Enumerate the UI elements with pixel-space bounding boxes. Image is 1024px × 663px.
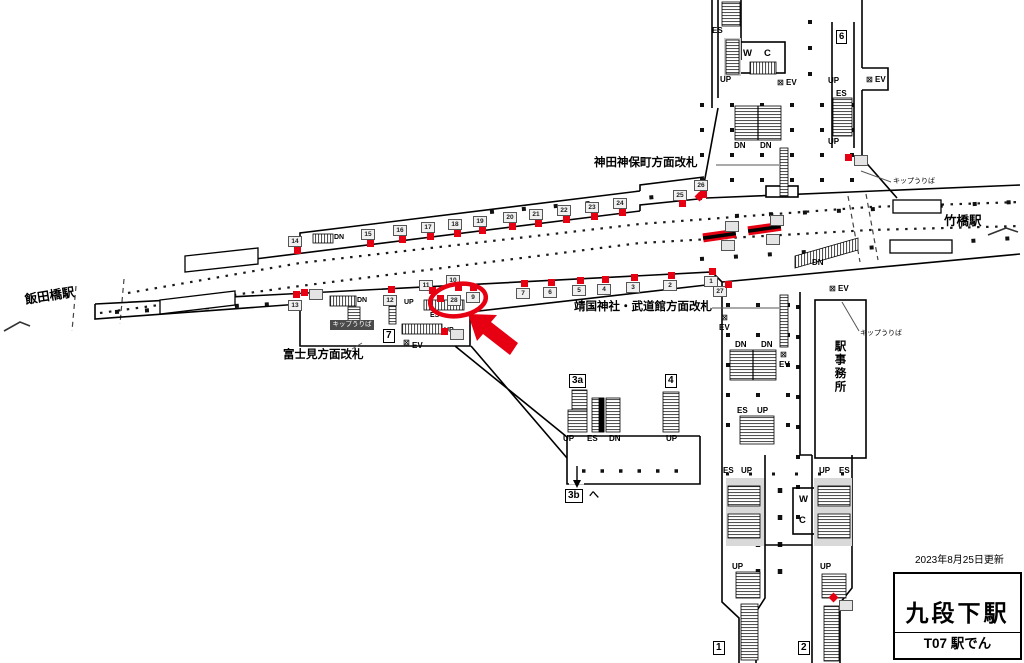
- up-label: UP: [404, 299, 414, 306]
- exit-7-box: 7: [383, 329, 395, 343]
- up-label: UP: [828, 77, 839, 85]
- elevator-icon: ⊠: [780, 351, 787, 359]
- panel-number-box: [854, 155, 868, 166]
- panel-number-box: [725, 221, 739, 232]
- dn-label: DN: [734, 142, 746, 150]
- es-label: ES: [737, 407, 748, 415]
- es-label: ES: [839, 467, 850, 475]
- exit-4-box: 4: [665, 374, 677, 388]
- wc-c-label: C: [799, 516, 806, 526]
- panel-number-box: 22: [557, 205, 571, 216]
- panel-number-box: 9: [466, 292, 480, 303]
- panel-number-box: [721, 240, 735, 251]
- north-concourse-walls: [712, 0, 897, 198]
- panel-number-box: [770, 215, 784, 226]
- panel-red-square: [535, 220, 542, 227]
- ticket-office-label-west: キップうりば: [330, 320, 374, 330]
- panel-red-square: [441, 328, 448, 335]
- panel-red-square: [725, 281, 732, 288]
- ev-label: EV: [875, 76, 886, 84]
- panel-number-box: 12: [383, 295, 397, 306]
- dn-label: DN: [735, 341, 747, 349]
- panel-red-square: [602, 276, 609, 283]
- ticket-office-label-north: キップうりば: [893, 178, 935, 185]
- map-updated-date: 2023年8月25日更新: [915, 556, 1004, 566]
- dn-label: DN: [357, 297, 367, 304]
- highlighted-panel-number-box[interactable]: 28: [447, 295, 461, 306]
- wc-c-label: C: [764, 49, 771, 59]
- station-info-box: 東西線 九段下駅 T07 駅でん: [893, 572, 1022, 660]
- panel-number-box: [766, 234, 780, 245]
- panel-number-box: 20: [503, 212, 517, 223]
- station-name: 九段下駅: [895, 595, 1020, 632]
- panel-red-square: [479, 227, 486, 234]
- es-label: ES: [723, 467, 734, 475]
- es-label: ES: [712, 27, 723, 35]
- dn-label: DN: [760, 142, 772, 150]
- up-label: UP: [819, 467, 830, 475]
- panel-red-square: [521, 280, 528, 287]
- exit-3b-suffix: へ: [589, 491, 599, 501]
- panel-number-box: 3: [626, 282, 640, 293]
- wc-w-label: W: [799, 495, 808, 505]
- panel-number-box: [839, 600, 853, 611]
- stairs-blocks: [313, 2, 858, 661]
- gate-label-south: 靖国神社・武道館方面改札: [574, 302, 712, 314]
- adjacent-station-right: 竹橋駅: [944, 215, 982, 228]
- elevator-icon: ⊠: [866, 76, 873, 84]
- panel-number-box: 23: [585, 202, 599, 213]
- panel-red-square: [367, 240, 374, 247]
- platform-walls: [95, 108, 1020, 458]
- ev-label: EV: [719, 324, 730, 332]
- panel-red-square: [399, 236, 406, 243]
- ev-label: EV: [412, 342, 423, 350]
- panel-red-square: [293, 291, 300, 298]
- es-label: ES: [587, 435, 598, 443]
- dn-label: DN: [609, 435, 621, 443]
- panel-number-box: 16: [393, 225, 407, 236]
- panel-number-box: 4: [597, 284, 611, 295]
- panel-number-box: 26: [694, 180, 708, 191]
- panel-number-box: 6: [543, 287, 557, 298]
- exit-6-box: 6: [836, 30, 847, 44]
- panel-red-square: [454, 230, 461, 237]
- station-code: T07 駅でん: [895, 632, 1020, 654]
- station-office-label: 駅事務所: [833, 340, 845, 410]
- ev-label: EV: [779, 361, 790, 369]
- exit-2-box: 2: [798, 641, 810, 655]
- exit-3a-box: 3a: [569, 374, 586, 388]
- up-label: UP: [828, 138, 839, 146]
- elevator-icon: ⊠: [829, 285, 836, 293]
- up-label: UP: [741, 467, 752, 475]
- panel-number-box: 5: [572, 285, 586, 296]
- panel-red-square: [577, 277, 584, 284]
- panel-number-box: [450, 329, 464, 340]
- up-label: UP: [720, 76, 731, 84]
- panel-red-square: [619, 209, 626, 216]
- panel-number-box: [309, 289, 323, 300]
- ev-label: EV: [786, 79, 797, 87]
- line-name-banner: 東西線: [897, 576, 1018, 593]
- dn-label: DN: [334, 234, 344, 241]
- panel-red-square: [548, 279, 555, 286]
- panel-red-square: [427, 233, 434, 240]
- panel-red-square: [591, 213, 598, 220]
- panel-number-box: 19: [473, 216, 487, 227]
- wc-w-label: W: [743, 49, 752, 59]
- up-label: UP: [666, 435, 677, 443]
- dn-label: DN: [761, 341, 773, 349]
- panel-number-box: 13: [288, 300, 302, 311]
- panel-number-box: 15: [361, 229, 375, 240]
- panel-red-square: [294, 247, 301, 254]
- ticket-office-label-south: キップうりば: [860, 330, 902, 337]
- ev-label: EV: [838, 285, 849, 293]
- panel-number-box: 18: [448, 219, 462, 230]
- station-map: 飯田橋駅 竹橋駅 神田神保町方面改札 靖国神社・武道館方面改札 富士見方面改札 …: [0, 0, 1024, 663]
- highlighted-panel-red-square: [437, 295, 444, 302]
- panel-red-square: [455, 284, 462, 291]
- panel-red-square: [301, 289, 308, 296]
- panel-number-box: 21: [529, 209, 543, 220]
- panel-red-square: [563, 216, 570, 223]
- panel-number-box: 24: [613, 198, 627, 209]
- panel-number-box: 14: [288, 236, 302, 247]
- dn-label: DN: [812, 259, 824, 267]
- es-label: ES: [836, 90, 847, 98]
- up-label: UP: [820, 563, 831, 571]
- gate-label-north: 神田神保町方面改札: [594, 158, 698, 170]
- panel-red-square: [388, 286, 395, 293]
- gate-label-west: 富士見方面改札: [283, 350, 364, 362]
- up-label: UP: [732, 563, 743, 571]
- panel-red-square: [631, 274, 638, 281]
- es-label: ES: [430, 312, 439, 319]
- panel-number-box: 17: [421, 222, 435, 233]
- panel-red-square: [429, 287, 436, 294]
- panel-red-square: [470, 284, 477, 291]
- up-label: UP: [563, 435, 574, 443]
- exit-3b-box: 3b: [565, 489, 583, 503]
- panel-red-square: [679, 200, 686, 207]
- panel-red-square: [668, 272, 675, 279]
- up-label: UP: [757, 407, 768, 415]
- panel-number-box: 7: [516, 288, 530, 299]
- elevator-icon: ⊠: [777, 79, 784, 87]
- panel-red-square: [509, 223, 516, 230]
- panel-red-square: [709, 268, 716, 275]
- panel-number-box: 2: [663, 280, 677, 291]
- panel-red-square: [845, 154, 852, 161]
- exit-1-box: 1: [713, 641, 725, 655]
- elevator-icon: ⊠: [403, 339, 410, 347]
- elevator-icon: ⊠: [721, 314, 728, 322]
